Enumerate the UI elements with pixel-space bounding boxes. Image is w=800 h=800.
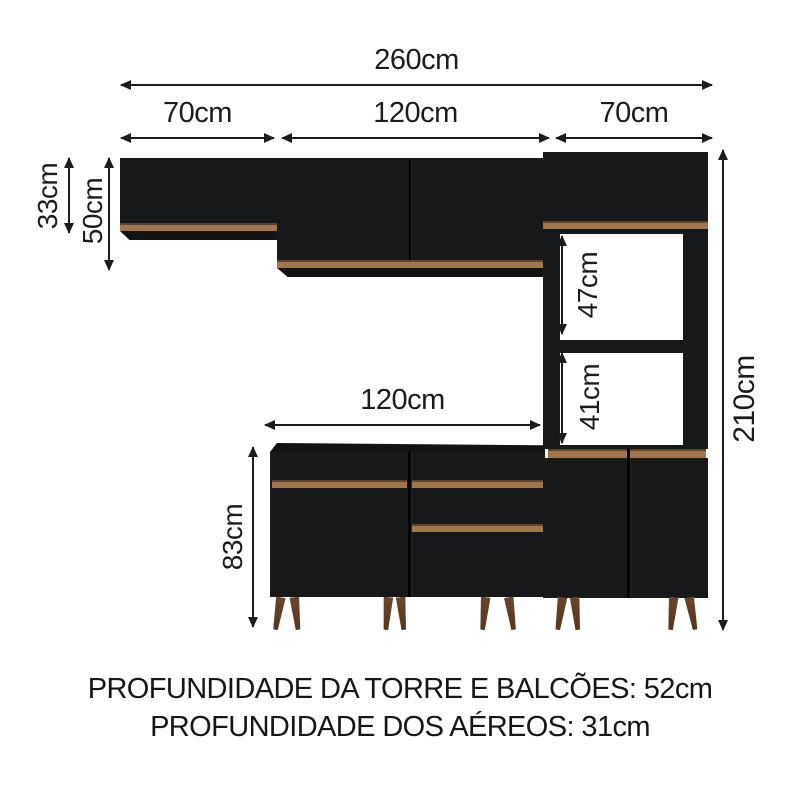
dimension-label: 41cm: [574, 327, 606, 467]
base-right-top-handle-strip: [412, 480, 543, 488]
arrowhead-up-icon: [557, 352, 567, 363]
dimension-label: 120cm: [282, 97, 549, 130]
cabinet-leg: [378, 596, 397, 630]
arrowhead-down-icon: [64, 223, 74, 234]
dimension-label: 70cm: [556, 97, 712, 130]
arrowhead-down-icon: [718, 620, 728, 631]
middle-aerial-wood-strip: [277, 260, 543, 268]
dimension-line: [265, 424, 540, 426]
cabinet-leg: [393, 596, 412, 630]
cabinet-leg: [550, 596, 571, 631]
tower-top-wood-strip: [543, 221, 708, 229]
arrowhead-up-icon: [64, 157, 74, 168]
dimension-line: [556, 137, 712, 139]
arrowhead-right-icon: [539, 133, 550, 143]
arrowhead-left-icon: [120, 80, 131, 90]
arrowhead-up-icon: [248, 446, 258, 457]
tower-base-door-divider: [627, 449, 630, 598]
left-aerial-cabinet-body: [120, 158, 277, 223]
dimension-line: [282, 137, 549, 139]
arrowhead-right-icon: [530, 420, 541, 430]
arrowhead-right-icon: [702, 80, 713, 90]
dimension-line: [121, 84, 712, 86]
dimension-label: 50cm: [77, 141, 109, 281]
arrowhead-right-icon: [264, 133, 275, 143]
base-right-bottom-handle-strip: [412, 524, 543, 532]
arrowhead-down-icon: [557, 433, 567, 444]
left-aerial-bottom-lip: [120, 231, 277, 240]
depth-notes: PROFUNDIDADE DA TORRE E BALCÕES: 52cm PR…: [0, 670, 800, 746]
cabinet-leg: [662, 596, 681, 630]
middle-aerial-door-divider: [409, 160, 411, 260]
arrowhead-down-icon: [248, 617, 258, 628]
arrowhead-left-icon: [264, 420, 275, 430]
cabinet-leg: [474, 596, 493, 630]
arrowhead-up-icon: [557, 235, 567, 246]
cabinet-leg: [567, 596, 586, 630]
dimension-label: 260cm: [121, 44, 712, 77]
cabinet-leg: [501, 596, 521, 631]
dimension-label: 33cm: [32, 126, 64, 266]
dimension-label: 70cm: [121, 97, 274, 130]
arrowhead-left-icon: [120, 133, 131, 143]
left-aerial-wood-strip: [120, 223, 277, 231]
cabinet-leg: [286, 596, 305, 630]
dimension-label: 83cm: [217, 467, 249, 607]
arrowhead-left-icon: [281, 133, 292, 143]
furniture-dimension-diagram: 260cm 70cm 120cm 70cm 120cm 33cm: [0, 0, 800, 800]
arrowhead-left-icon: [555, 133, 566, 143]
base-door-divider: [408, 452, 411, 597]
depth-note-tower-counters: PROFUNDIDADE DA TORRE E BALCÕES: 52cm: [0, 670, 800, 708]
tower-top-cabinet-body: [543, 152, 708, 221]
cabinet-leg: [681, 596, 702, 631]
dimension-label: 120cm: [265, 384, 540, 417]
dimension-line: [252, 447, 254, 627]
arrowhead-right-icon: [702, 133, 713, 143]
cabinet-leg: [267, 596, 288, 631]
middle-aerial-bottom-lip: [277, 268, 543, 277]
tower-middle-shelf: [543, 340, 708, 353]
dimension-line: [561, 236, 563, 334]
base-cabinet-countertop: [270, 443, 545, 452]
base-left-handle-strip: [272, 480, 407, 488]
dimension-line: [561, 353, 563, 443]
dimension-line: [68, 158, 70, 233]
dimension-line: [722, 150, 724, 630]
dimension-label: 210cm: [729, 329, 761, 469]
arrowhead-down-icon: [557, 324, 567, 335]
arrowhead-up-icon: [718, 149, 728, 160]
dimension-line: [121, 137, 274, 139]
depth-note-aerials: PROFUNDIDADE DOS AÉREOS: 31cm: [0, 708, 800, 746]
tower-base-doors: [543, 458, 708, 598]
